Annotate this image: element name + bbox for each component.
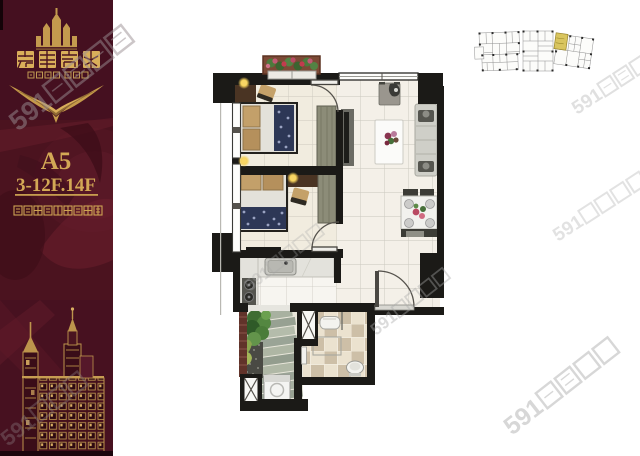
svg-text:A5: A5: [41, 148, 72, 175]
svg-text:3-12F.14F: 3-12F.14F: [16, 175, 96, 196]
